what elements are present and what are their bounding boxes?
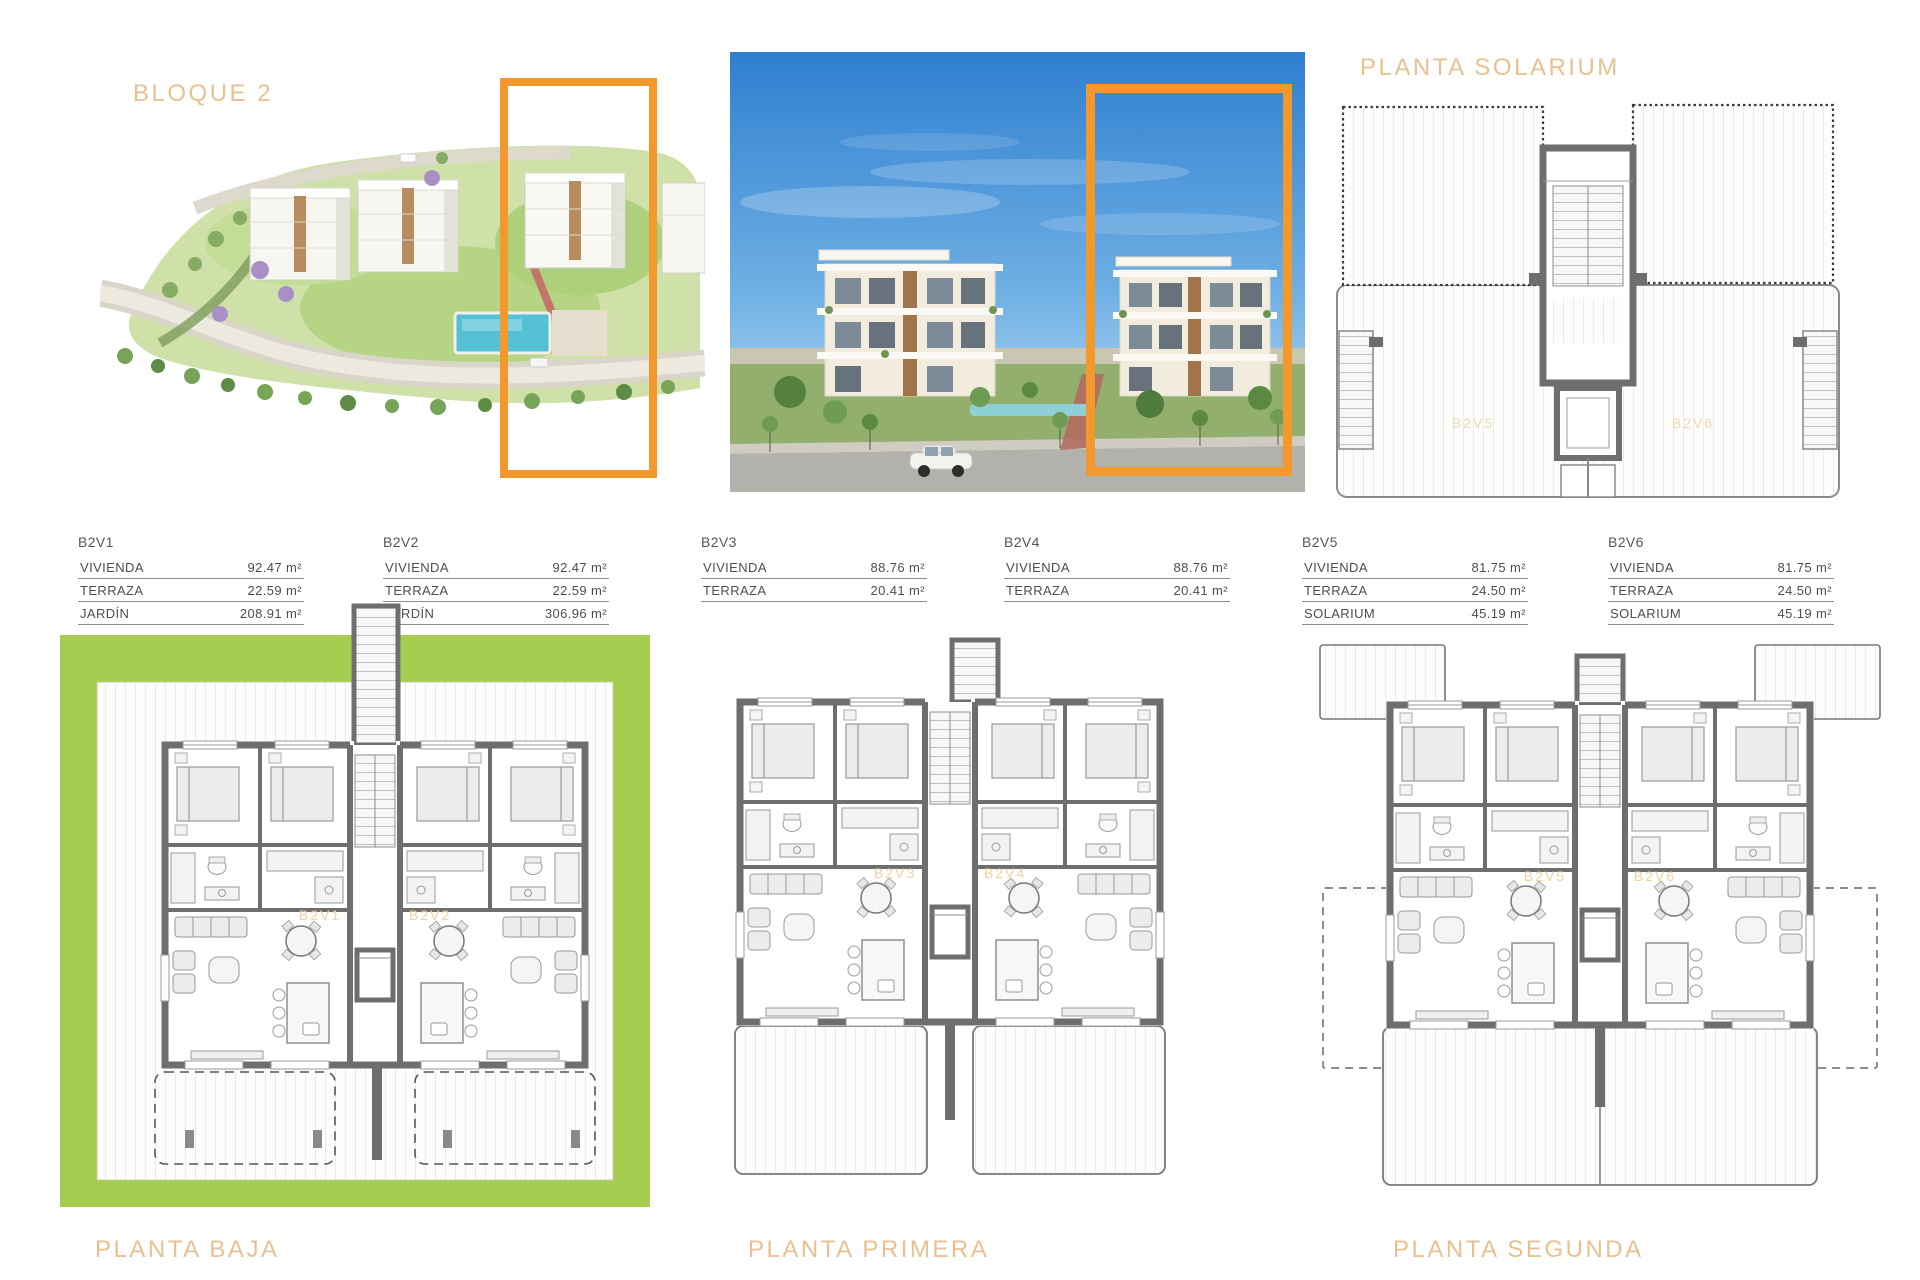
planta-segunda-floorplan: B2V5 B2V6 [1305,630,1895,1215]
building [358,180,458,272]
unit-plan-right [1621,701,1814,1029]
post [571,1130,580,1148]
wood-accent [903,264,917,396]
area-label: SOLARIUM [1610,606,1681,621]
post [185,1130,194,1148]
heading-planta-baja: PLANTA BAJA [95,1236,279,1264]
pergola-left [1343,107,1543,285]
area-label: TERRAZA [1610,583,1673,598]
area-label: TERRAZA [703,583,766,598]
stair-core [1575,705,1625,1025]
building-partial [662,183,705,273]
heading-bloque-2: BLOQUE 2 [133,80,273,108]
area-row: VIVIENDA88.76 m² [701,556,927,579]
unit-plan-left [161,741,354,1069]
unit-area-table: B2V5 VIVIENDA81.75 m² TERRAZA24.50 m² SO… [1302,534,1528,625]
area-value: 81.75 m² [1777,560,1832,575]
unit-area-table: B2V6 VIVIENDA81.75 m² TERRAZA24.50 m² SO… [1608,534,1834,625]
unit-plan-left [1386,701,1579,1029]
area-row: TERRAZA24.50 m² [1302,579,1528,602]
area-label: VIVIENDA [385,560,449,575]
heading-planta-solarium: PLANTA SOLARIUM [1360,54,1620,82]
planta-solarium-floorplan: B2V5 B2V6 [1333,93,1843,508]
area-value: 24.50 m² [1471,583,1526,598]
area-label: VIVIENDA [1610,560,1674,575]
swimming-pool [970,404,1090,416]
area-row: TERRAZA20.41 m² [1004,579,1230,602]
area-row: SOLARIUM45.19 m² [1302,602,1528,625]
heading-planta-segunda: PLANTA SEGUNDA [1393,1236,1644,1264]
highlight-rect-photo [1086,84,1292,476]
purple-tree [251,261,269,279]
wall-nub [1369,337,1383,347]
area-row: VIVIENDA81.75 m² [1608,556,1834,579]
stair-core [350,745,400,1065]
area-label: VIVIENDA [1006,560,1070,575]
unit-label: B2V4 [984,865,1026,881]
area-label: SOLARIUM [1304,606,1375,621]
area-value: 92.47 m² [552,560,607,575]
side-terrace-outline [1810,888,1877,1068]
area-value: 92.47 m² [247,560,302,575]
area-value: 20.41 m² [1173,583,1228,598]
wall-nub [1793,337,1807,347]
unit-id: B2V2 [383,534,609,550]
page-canvas: B2V5 B2V6 BLOQUE 2 PLANTA SOLARIUM PLANT… [0,0,1920,1280]
unit-plan-right [396,741,589,1069]
terrace-deck [735,1026,927,1174]
purple-tree [212,306,228,322]
area-label: VIVIENDA [1304,560,1368,575]
pergola-right [1633,105,1833,283]
area-label: VIVIENDA [703,560,767,575]
car [400,154,416,162]
unit-label: B2V1 [299,907,341,923]
unit-label: B2V5 [1452,415,1494,431]
unit-label: B2V2 [409,907,451,923]
unit-label: B2V5 [1524,868,1566,884]
entry-stairs [1577,656,1623,705]
area-value: 24.50 m² [1777,583,1832,598]
corridor-spine [372,1065,382,1160]
corridor-spine [945,1022,955,1120]
side-stairs-left [1339,331,1373,449]
entry-stairs [952,640,998,702]
unit-id: B2V4 [1004,534,1230,550]
area-value: 45.19 m² [1777,606,1832,621]
post [443,1130,452,1148]
area-value: 81.75 m² [1471,560,1526,575]
unit-area-table: B2V3 VIVIENDA88.76 m² TERRAZA20.41 m² [701,534,927,602]
corridor-spine [1595,1025,1605,1107]
highlight-rect-aerial [500,78,657,478]
area-value: 88.76 m² [1173,560,1228,575]
stair-core [1543,148,1633,498]
area-row: VIVIENDA92.47 m² [78,556,304,579]
area-row: TERRAZA24.50 m² [1608,579,1834,602]
side-terrace-outline [1323,888,1390,1068]
post [313,1130,322,1148]
side-stairs-right [1803,331,1837,449]
area-row: VIVIENDA81.75 m² [1302,556,1528,579]
unit-label: B2V6 [1634,868,1676,884]
planta-baja-floorplan: B2V1 B2V2 [55,590,655,1215]
purple-tree [424,170,440,186]
heading-planta-primera: PLANTA PRIMERA [748,1236,989,1264]
area-row: TERRAZA20.41 m² [701,579,927,602]
terrace-deck [973,1026,1165,1174]
area-value: 88.76 m² [870,560,925,575]
area-label: TERRAZA [1006,583,1069,598]
area-label: VIVIENDA [80,560,144,575]
unit-id: B2V5 [1302,534,1528,550]
area-value: 45.19 m² [1471,606,1526,621]
entry-stairs [354,606,398,745]
building-left [817,250,1003,396]
purple-tree [278,286,294,302]
unit-id: B2V3 [701,534,927,550]
unit-id: B2V1 [78,534,304,550]
unit-label: B2V3 [874,865,916,881]
stair-core [925,702,975,1022]
area-label: TERRAZA [1304,583,1367,598]
unit-id: B2V6 [1608,534,1834,550]
unit-area-table: B2V4 VIVIENDA88.76 m² TERRAZA20.41 m² [1004,534,1230,602]
unit-label: B2V6 [1672,415,1714,431]
area-row: VIVIENDA88.76 m² [1004,556,1230,579]
area-value: 20.41 m² [870,583,925,598]
area-row: SOLARIUM45.19 m² [1608,602,1834,625]
area-row: VIVIENDA92.47 m² [383,556,609,579]
planta-primera-floorplan: B2V3 B2V4 [715,630,1235,1195]
unit-plan-left [736,698,929,1026]
unit-plan-right [971,698,1164,1026]
